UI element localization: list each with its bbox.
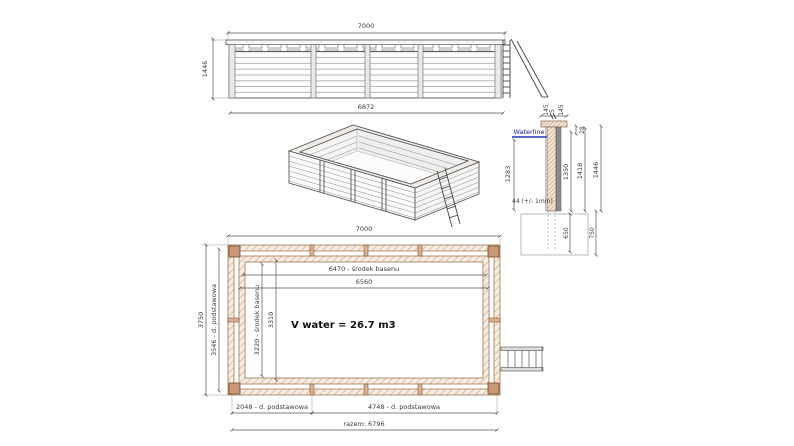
plan-dim-total: razem: 6796 [343,420,384,428]
section-dim-1446: 1446 [592,162,600,179]
plan-ladder [501,347,543,371]
isometric-view [289,125,479,227]
plan-dim-width-base: 3546 - d. podstawowa [210,284,218,356]
water-volume-label: V water = 26.7 m3 [291,320,396,331]
elevation-dim-bottom: 6872 [358,103,375,111]
section-dim-1350: 1350 [562,164,570,181]
plan-dim-width-inner: 3310 [267,312,275,329]
elevation-view: 7000 1446 6872 [201,22,548,113]
plan-dim-base-left: 2048 - d. podstawowa [236,403,308,411]
section-dim-750: 750 [589,227,596,239]
section-dim-1283: 1283 [504,166,512,183]
elevation-dim-left: 1446 [201,61,209,78]
section-outer-board [557,127,562,211]
section-plank-note: 44 (+/- 1mm) [512,198,553,205]
section-dim-1418: 1418 [576,163,584,180]
plan-dim-width-outer: 3750 [197,312,205,329]
section-dim-cap-b: 145 [558,104,565,116]
plan-dim-center: 6470 - środek basenu [329,265,400,273]
plan-dim-base-right: 4748 - d. podstawowa [368,403,440,411]
section-dim-650: 650 [563,227,570,239]
section-ground-box [521,214,588,255]
section-coping [541,121,567,127]
drawing-sheet: 7000 1446 6872 [0,0,794,446]
elevation-coping [226,40,505,45]
technical-drawing-page: 7000 1446 6872 [0,0,794,446]
plan-dim-top: 7000 [356,225,373,233]
plan-view: 7000 6470 - środek basenu 6560 [197,225,543,430]
elevation-ladder [503,39,548,98]
plan-dim-width-center: 3220 - środek basenu [253,285,261,356]
section-dim-cap-gap: 5 [549,109,556,113]
elevation-dim-top: 7000 [358,22,375,30]
section-view: 145 5 145 Waterline 1283 44 (+/- 1mm) 28… [504,104,601,255]
plan-dim-inner: 6560 [356,278,373,286]
waterline-label: Waterline [514,128,545,136]
